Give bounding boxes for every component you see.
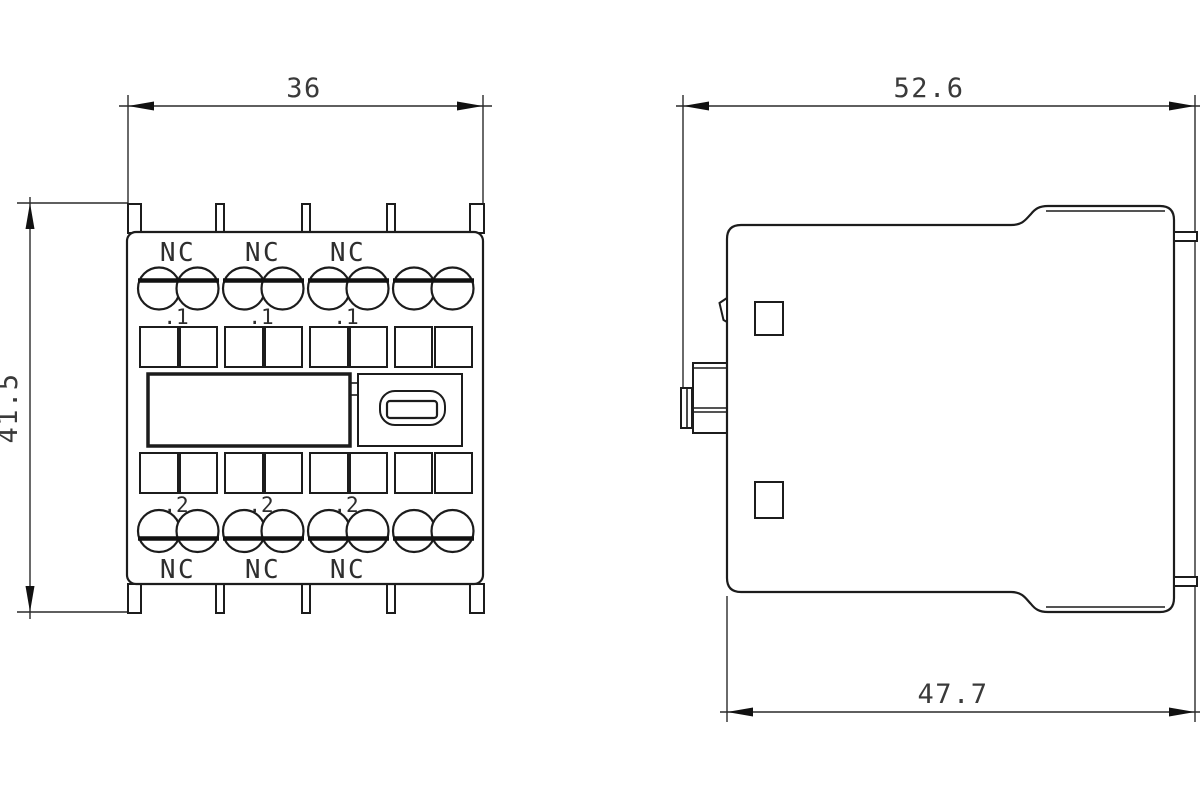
- mounting-tab: [302, 204, 310, 233]
- front-height-label: 41.5: [0, 372, 24, 443]
- mounting-tab: [470, 204, 484, 233]
- screw-terminal: [177, 510, 219, 552]
- mounting-tab: [387, 204, 395, 233]
- mounting-tab: [128, 584, 141, 613]
- mounting-tab: [470, 584, 484, 613]
- claw-block: [693, 363, 727, 433]
- side-body: [727, 206, 1174, 612]
- dim-arrow-right: [457, 102, 483, 111]
- side-bottom-dimension: 47.7: [720, 596, 1200, 722]
- mounting-claw: [681, 363, 727, 433]
- dim-arrow-bottom: [26, 586, 35, 612]
- screw-terminal: [223, 510, 265, 552]
- front-bottom-tabs: [128, 584, 484, 613]
- dim-arrow-right: [1169, 708, 1195, 717]
- dim-arrow-left: [128, 102, 154, 111]
- nc-label: NC: [160, 555, 196, 585]
- nc-label: NC: [245, 238, 281, 268]
- mounting-tab: [216, 204, 224, 233]
- side-bottom-width-label: 47.7: [917, 679, 988, 710]
- side-top-width-label: 52.6: [893, 73, 964, 104]
- test-button: [387, 401, 437, 418]
- mounting-tab: [302, 584, 310, 613]
- screw-terminal: [347, 510, 389, 552]
- front-view: 36 41.5: [0, 73, 492, 619]
- nc-label: NC: [330, 238, 366, 268]
- screw-terminal: [393, 510, 435, 552]
- nc-label: NC: [245, 555, 281, 585]
- terminal-number: .1: [163, 305, 188, 329]
- dim-arrow-right: [1169, 102, 1195, 111]
- screw-terminal: [138, 510, 180, 552]
- screw-terminal: [393, 268, 435, 310]
- latch-hook: [720, 298, 728, 322]
- screw-terminal: [262, 510, 304, 552]
- screw-terminal: [432, 510, 474, 552]
- screw-terminal: [308, 510, 350, 552]
- front-width-dimension: 36: [119, 73, 492, 203]
- nc-label: NC: [330, 555, 366, 585]
- side-view: 52.6 47.7: [676, 73, 1200, 722]
- dim-arrow-left: [727, 708, 753, 717]
- screw-terminal: [177, 268, 219, 310]
- dimension-drawing: 36 41.5: [0, 0, 1200, 800]
- front-height-dimension: 41.5: [0, 197, 128, 619]
- terminal-number: .1: [248, 305, 273, 329]
- screw-terminal: [308, 268, 350, 310]
- side-tab: [1174, 577, 1197, 586]
- screw-terminal: [223, 268, 265, 310]
- front-top-tabs: [128, 204, 484, 233]
- mounting-tab: [216, 584, 224, 613]
- screw-terminal: [138, 268, 180, 310]
- terminal-number: .1: [333, 305, 358, 329]
- screw-terminal: [262, 268, 304, 310]
- screw-terminal: [432, 268, 474, 310]
- mounting-tab: [128, 204, 141, 233]
- front-width-label: 36: [286, 73, 322, 104]
- nc-label: NC: [160, 238, 196, 268]
- screw-terminal: [347, 268, 389, 310]
- side-tab: [1174, 232, 1197, 241]
- dim-arrow-left: [683, 102, 709, 111]
- mounting-tab: [387, 584, 395, 613]
- dim-arrow-top: [26, 203, 35, 229]
